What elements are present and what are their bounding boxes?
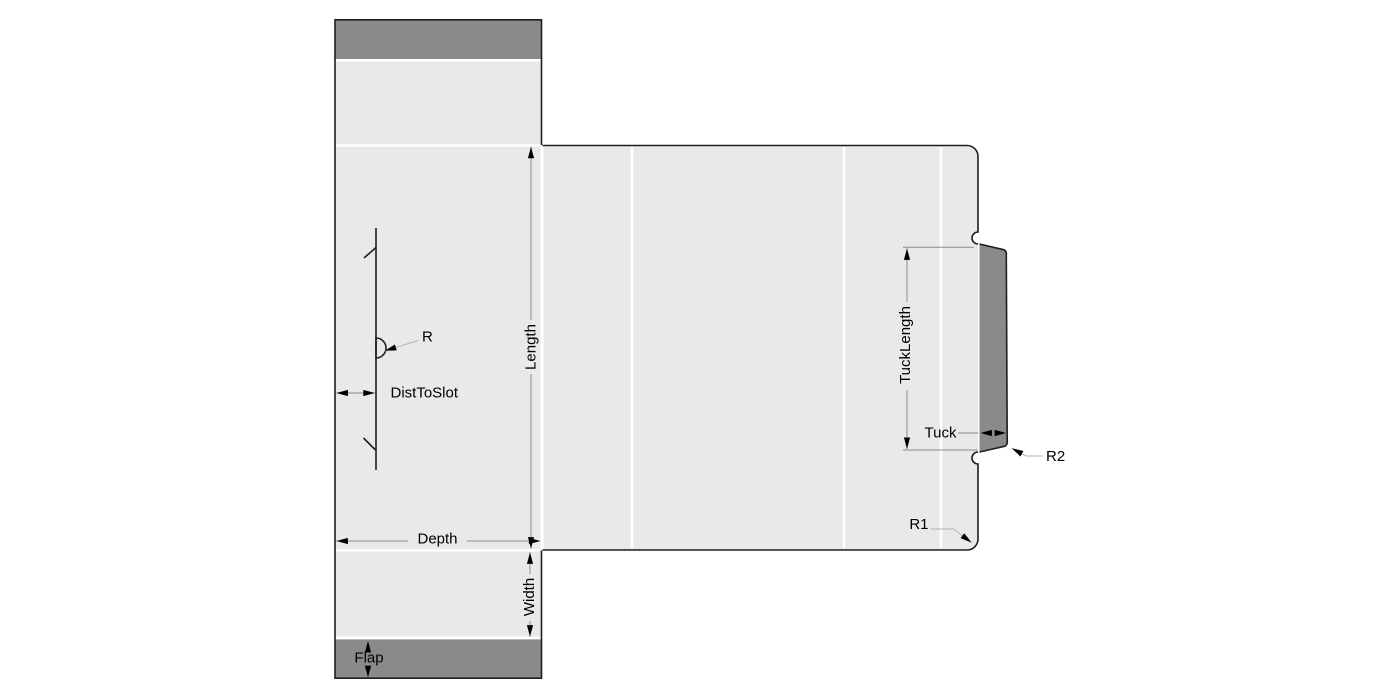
side-strip-panel [335, 19, 542, 679]
tucklength-label: TuckLength [897, 306, 914, 384]
r-label: R [422, 329, 433, 346]
width-label: Width [521, 578, 538, 616]
dieline-canvas: Length Width Depth Flap DistToSlot TuckL… [0, 0, 1400, 700]
r1-label: R1 [909, 516, 928, 533]
disttoslot-label: DistToSlot [391, 385, 459, 402]
tuck-flap [980, 244, 1008, 452]
top-dust-flap [335, 19, 542, 59]
tuck-label: Tuck [925, 425, 957, 442]
flap-label: Flap [354, 650, 383, 667]
dieline-diagram: Length Width Depth Flap DistToSlot TuckL… [0, 0, 1400, 700]
r2-leader [1012, 448, 1043, 456]
depth-label: Depth [417, 531, 457, 548]
r2-label: R2 [1046, 448, 1065, 465]
length-label: Length [523, 324, 540, 370]
